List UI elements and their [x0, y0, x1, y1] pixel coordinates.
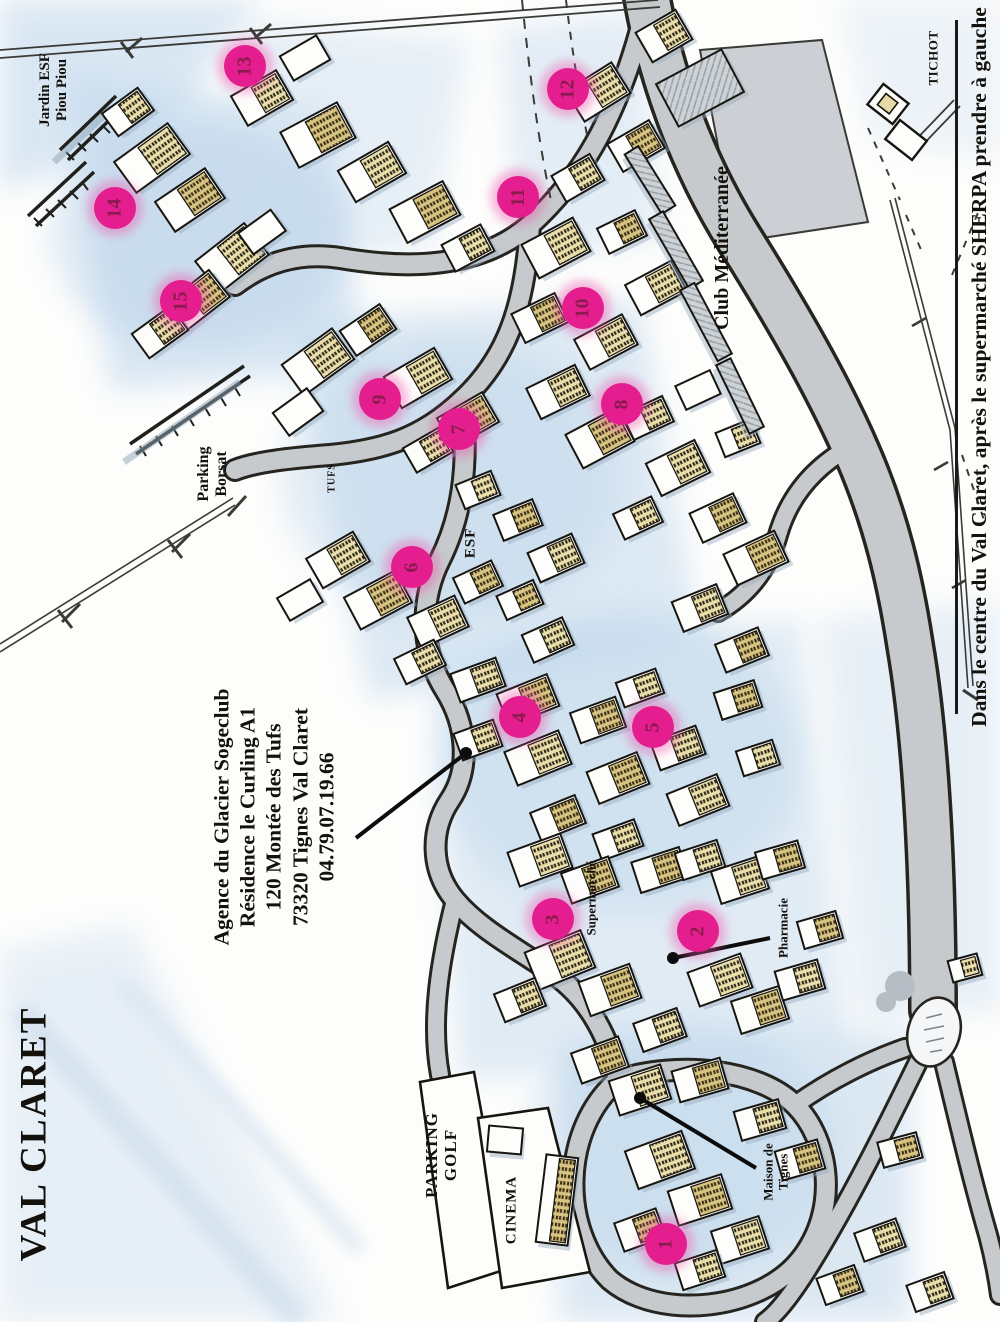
- map-marker-number: 15: [170, 291, 193, 311]
- map-marker-number: 14: [104, 198, 127, 218]
- map-marker-number: 2: [687, 926, 710, 936]
- label-tichot: TICHOT: [927, 30, 942, 85]
- map-marker-number: 7: [448, 424, 471, 434]
- page-title: VAL CLARET: [13, 1007, 54, 1262]
- map-marker-number: 6: [401, 562, 424, 572]
- map-marker-number: 12: [557, 79, 580, 99]
- map-marker-number: 11: [507, 188, 530, 207]
- label-pharmacie: Pharmacie: [777, 898, 792, 958]
- label-supermarche: Supermarché: [585, 861, 600, 936]
- map-marker-12: 12: [547, 68, 589, 110]
- agency-line-4: 73320 Tignes Val Claret: [287, 689, 313, 946]
- agency-line-3: 120 Montée des Tufs: [261, 689, 287, 946]
- label-maison-de-tignes: Maison de Tignes: [761, 1143, 790, 1200]
- banner-divider-line: [955, 20, 958, 714]
- map-marker-1: 1: [645, 1223, 687, 1265]
- map-marker-5: 5: [632, 706, 674, 748]
- map-marker-9: 9: [359, 378, 401, 420]
- label-club-mediterranee: Club Méditerranée: [711, 166, 733, 330]
- label-jardin-esf: Jardin ESF Piou Piou: [37, 53, 71, 127]
- map-marker-number: 13: [234, 56, 257, 76]
- label-tufs: TUFS: [326, 463, 337, 493]
- map-marker-7: 7: [438, 408, 480, 450]
- label-parking-golf: PARKING GOLF: [422, 1112, 460, 1198]
- agency-line-5: 04.79.07.19.66: [313, 689, 339, 946]
- map-marker-number: 9: [369, 394, 392, 404]
- map-marker-number: 3: [542, 914, 565, 924]
- map-marker-2: 2: [677, 910, 719, 952]
- map-marker-11: 11: [497, 176, 539, 218]
- map-marker-15: 15: [160, 280, 202, 322]
- map-marker-number: 8: [611, 399, 634, 409]
- route-note: Dans le centre du Val Claret, après le s…: [967, 7, 991, 727]
- map-marker-13: 13: [224, 45, 266, 87]
- label-parking-borsat: Parking Borsat: [195, 446, 231, 501]
- map-marker-number: 4: [509, 712, 532, 722]
- map-marker-number: 1: [655, 1239, 678, 1249]
- map-marker-number: 5: [642, 722, 665, 732]
- agency-address-block: Agence du Glacier Sogeclub Résidence le …: [208, 689, 339, 946]
- map-marker-8: 8: [601, 383, 643, 425]
- map-marker-6: 6: [391, 546, 433, 588]
- label-cinema: CINEMA: [504, 1176, 521, 1245]
- map-marker-3: 3: [532, 898, 574, 940]
- map-marker-10: 10: [562, 287, 604, 329]
- map-marker-4: 4: [499, 696, 541, 738]
- map-marker-number: 10: [572, 298, 595, 318]
- map-marker-14: 14: [94, 187, 136, 229]
- agency-line-1: Agence du Glacier Sogeclub: [208, 689, 234, 946]
- agency-line-2: Résidence le Curling A1: [235, 689, 261, 946]
- label-esf: ESF: [463, 528, 480, 559]
- map-canvas: VAL CLARET Dans le centre du Val Claret,…: [0, 0, 1000, 1322]
